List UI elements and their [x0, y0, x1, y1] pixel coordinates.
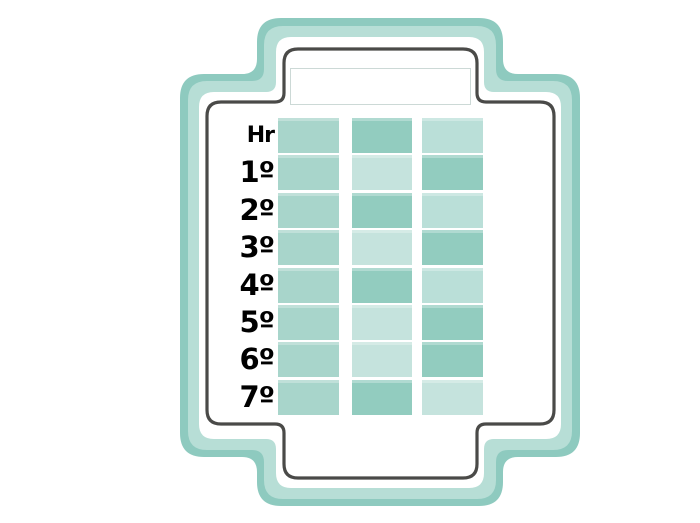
schedule-cell	[278, 380, 339, 415]
schedule-cell	[422, 305, 483, 340]
row-label: Hr	[210, 118, 274, 153]
row-label: 7º	[210, 380, 274, 415]
table-row: 3º	[210, 230, 490, 265]
schedule-cell	[278, 155, 339, 190]
schedule-template: Hr1º2º3º4º5º6º7º	[0, 0, 700, 523]
schedule-cell	[422, 155, 483, 190]
schedule-cell	[422, 380, 483, 415]
schedule-grid: Hr1º2º3º4º5º6º7º	[210, 118, 490, 418]
schedule-cell	[352, 268, 412, 303]
table-row: 2º	[210, 193, 490, 228]
table-row: 5º	[210, 305, 490, 340]
schedule-cell	[422, 230, 483, 265]
row-label: 2º	[210, 193, 274, 228]
schedule-cell	[278, 193, 339, 228]
schedule-cell	[278, 268, 339, 303]
schedule-cell	[278, 342, 339, 377]
row-label: 4º	[210, 268, 274, 303]
table-row: Hr	[210, 118, 490, 153]
schedule-cell	[352, 230, 412, 265]
schedule-cell	[352, 118, 412, 153]
schedule-cell	[422, 342, 483, 377]
schedule-cell	[352, 380, 412, 415]
row-label: 6º	[210, 342, 274, 377]
table-row: 1º	[210, 155, 490, 190]
schedule-cell	[422, 193, 483, 228]
schedule-cell	[352, 342, 412, 377]
row-label: 5º	[210, 305, 274, 340]
row-label: 3º	[210, 230, 274, 265]
table-row: 7º	[210, 380, 490, 415]
schedule-cell	[278, 118, 339, 153]
schedule-cell	[422, 268, 483, 303]
schedule-cell	[422, 118, 483, 153]
schedule-cell	[352, 193, 412, 228]
row-label: 1º	[210, 155, 274, 190]
title-box[interactable]	[290, 68, 471, 105]
schedule-cell	[278, 305, 339, 340]
schedule-cell	[352, 155, 412, 190]
schedule-cell	[352, 305, 412, 340]
table-row: 4º	[210, 268, 490, 303]
schedule-cell	[278, 230, 339, 265]
table-row: 6º	[210, 342, 490, 377]
